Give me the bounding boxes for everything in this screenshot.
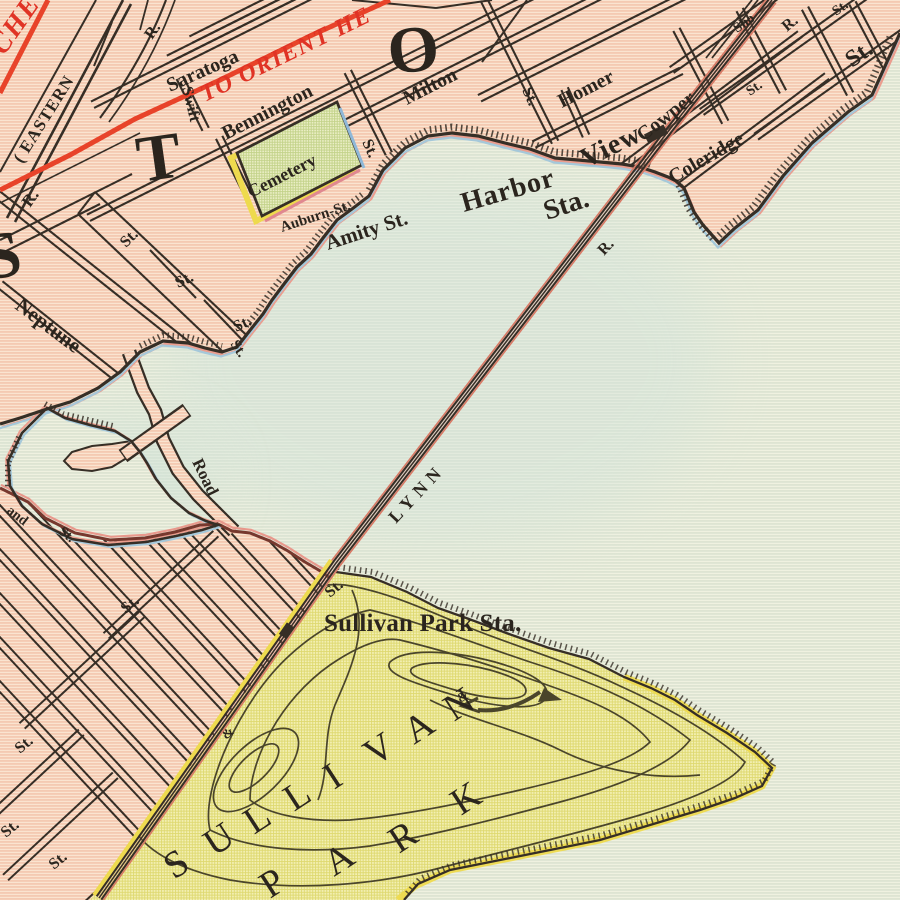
svg-text:Sullivan Park Sta.: Sullivan Park Sta.	[324, 610, 521, 637]
